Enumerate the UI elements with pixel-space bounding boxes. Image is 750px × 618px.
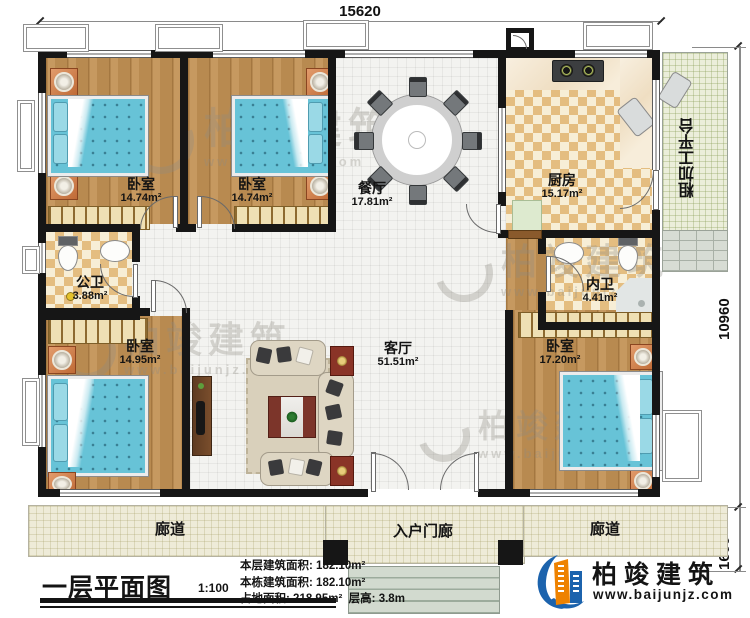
pillow	[638, 379, 653, 415]
sofa-cushion	[326, 430, 343, 446]
room-label-bedroom-bl: 卧室 14.95m²	[98, 338, 182, 367]
window-sill	[17, 100, 35, 172]
company-name: 柏竣建筑	[592, 555, 720, 591]
lamp-icon	[52, 350, 72, 370]
window-sill	[303, 20, 369, 50]
building-area-row: 本栋建筑面积: 182.10m²	[240, 575, 470, 592]
room-area: 14.74m²	[101, 192, 181, 205]
cutting-board	[512, 200, 542, 232]
dim-line-right-porch	[739, 508, 741, 572]
room-name: 卧室	[212, 176, 292, 192]
dining-table-center	[408, 131, 426, 149]
corridor-right-label: 廊道	[565, 518, 645, 539]
room-label-bedroom-br: 卧室 17.20m²	[518, 338, 602, 367]
area-info: 本层建筑面积: 182.10m² 本栋建筑面积: 182.10m² 占地面积: …	[240, 558, 470, 608]
dining-chair	[462, 132, 482, 150]
window	[652, 415, 660, 477]
window	[60, 489, 160, 497]
room-area: 14.95m²	[98, 354, 182, 367]
window	[38, 93, 46, 173]
glass-door	[498, 108, 506, 192]
sofa-bottom	[260, 452, 334, 486]
plan-scale: 1:100	[198, 581, 229, 595]
door-leaf	[653, 170, 659, 210]
room-label-kitchen: 厨房 15.17m²	[520, 172, 604, 201]
wall-kitchen-bottom-b	[540, 230, 660, 238]
room-name: 餐厅	[330, 180, 414, 196]
platform-bricks	[662, 230, 728, 272]
sofa-pillow	[288, 458, 306, 476]
dim-ext	[692, 47, 746, 48]
sofa-cushion	[268, 459, 284, 476]
decor-dot	[198, 383, 204, 389]
sofa-cushion	[325, 404, 343, 421]
lamp-icon	[54, 176, 74, 196]
side-table	[330, 346, 354, 376]
logo-icon	[532, 551, 586, 611]
dining-chair	[409, 77, 427, 97]
room-name: 公卫	[52, 274, 128, 290]
land-area-row: 占地面积: 218.95m² 层高: 3.8m	[240, 591, 470, 608]
wall-bed2-bottom	[232, 224, 336, 232]
room-label-bedroom-tm: 卧室 14.74m²	[212, 176, 292, 205]
entry-porch-label: 入户门廊	[363, 520, 483, 541]
floor-area-row: 本层建筑面积: 182.10m²	[240, 558, 470, 575]
wall-innerbath-bottom	[538, 322, 660, 330]
sofa-top	[250, 340, 326, 376]
room-area: 17.81m²	[330, 196, 414, 209]
nightstand	[48, 346, 76, 374]
floor-area-value: 182.10m²	[316, 560, 365, 572]
vestibule-door-leaf	[508, 230, 542, 239]
bed-sheet-fold	[68, 379, 94, 467]
room-label-bedroom-tl: 卧室 14.74m²	[101, 176, 181, 205]
window-sill	[155, 24, 223, 52]
wall-bed1-bottom	[38, 224, 140, 232]
room-name: 内卫	[562, 276, 638, 292]
land-area-label: 占地面积:	[240, 593, 290, 605]
room-label-living: 客厅 51.51m²	[356, 340, 440, 369]
wall-bed3-top	[38, 308, 150, 316]
lamp-icon	[310, 176, 330, 196]
sofa-cushion	[256, 347, 273, 365]
window	[213, 50, 305, 58]
tv-cabinet	[192, 376, 212, 456]
floor-plan-page: 15620 10960 1600 廊道 入户门廊 廊道 粗加工平台 柏竣建筑 w…	[0, 0, 750, 618]
entry-door-gap	[368, 489, 478, 497]
wall-bed-mid	[176, 224, 196, 232]
window	[345, 50, 473, 58]
room-name: 粗加工平台	[680, 88, 698, 228]
corridor-left-label: 廊道	[130, 518, 210, 539]
room-area: 14.74m²	[212, 192, 292, 205]
lamp-icon	[634, 472, 652, 490]
wall-dining-kitchen	[498, 50, 506, 108]
bed-sheet-fold	[68, 99, 94, 167]
dim-tick	[657, 17, 665, 25]
dining-chair	[354, 132, 374, 150]
room-name: 厨房	[520, 172, 604, 188]
room-area: 51.51m²	[356, 356, 440, 369]
porch-pillar	[498, 540, 523, 565]
room-label-platform: 粗加工平台	[678, 88, 702, 228]
lamp-icon	[337, 466, 347, 476]
window-sill	[22, 378, 40, 446]
side-table	[330, 456, 354, 486]
room-area: 17.20m²	[518, 354, 602, 367]
nightstand	[50, 68, 78, 96]
room-label-dining: 餐厅 17.81m²	[330, 180, 414, 209]
lamp-icon	[310, 72, 330, 92]
pillow	[53, 134, 68, 164]
company-logo: 柏竣建筑 www.baijunjz.com	[532, 551, 732, 611]
room-area: 15.17m²	[520, 188, 604, 201]
room-name: 卧室	[98, 338, 182, 354]
sofa-cushion	[276, 346, 292, 363]
building-area-label: 本栋建筑面积:	[240, 577, 313, 589]
nightstand	[50, 172, 78, 200]
lamp-icon	[337, 356, 347, 366]
sofa-cushion	[305, 459, 322, 477]
flue-curve	[513, 35, 527, 49]
building-area-value: 182.10m²	[316, 577, 365, 589]
lamp-icon	[54, 72, 74, 92]
lamp-icon	[634, 348, 652, 366]
land-area-value: 218.95m²	[293, 593, 342, 605]
burner-icon	[582, 64, 595, 77]
wall-innerbath-left-a	[538, 238, 546, 254]
tv-icon	[196, 401, 205, 435]
window-sill	[23, 24, 89, 52]
room-name: 客厅	[356, 340, 440, 356]
floor-area-label: 本层建筑面积:	[240, 560, 313, 572]
pillow	[53, 102, 68, 132]
pillow	[308, 102, 323, 132]
room-area: 3.88m²	[52, 290, 128, 303]
window	[575, 50, 647, 58]
dim-tick	[734, 42, 742, 50]
window-sill	[583, 22, 653, 50]
wall-bed1-bed2	[180, 50, 188, 232]
wall-pubbath-right-a	[132, 232, 140, 262]
shower-drain-icon	[638, 300, 645, 307]
room-area: 4.41m²	[562, 292, 638, 305]
room-label-public-bath: 公卫 3.88m²	[52, 274, 128, 303]
pillow	[308, 134, 323, 164]
room-name: 卧室	[101, 176, 181, 192]
bed-sheet-fold	[282, 99, 308, 167]
pillow	[638, 418, 653, 454]
sofa-pillow	[295, 346, 314, 365]
window	[530, 489, 638, 497]
sink	[100, 240, 130, 262]
dim-top-value: 15620	[290, 3, 430, 20]
stove	[552, 60, 604, 82]
dim-line-right-main	[739, 46, 741, 508]
pillow	[53, 424, 68, 462]
wall-bed3-right	[182, 308, 190, 497]
flue	[506, 28, 534, 52]
wall-bed4-left	[505, 310, 513, 497]
sofa-right	[318, 372, 354, 458]
room-label-inner-bath: 内卫 4.41m²	[562, 276, 638, 305]
storey-height-value: 3.8m	[379, 593, 405, 605]
window-sill	[22, 246, 40, 274]
burner-icon	[560, 64, 573, 77]
room-name: 卧室	[518, 338, 602, 354]
storey-height-label: 层高:	[349, 593, 376, 605]
bed-sheet-fold	[614, 375, 640, 461]
coffee-table	[268, 396, 316, 438]
sofa-cushion	[325, 379, 344, 397]
company-website: www.baijunjz.com	[593, 587, 734, 602]
plant-icon	[286, 411, 298, 423]
pillow	[53, 383, 68, 421]
window	[652, 80, 660, 170]
window-sill	[662, 410, 702, 482]
